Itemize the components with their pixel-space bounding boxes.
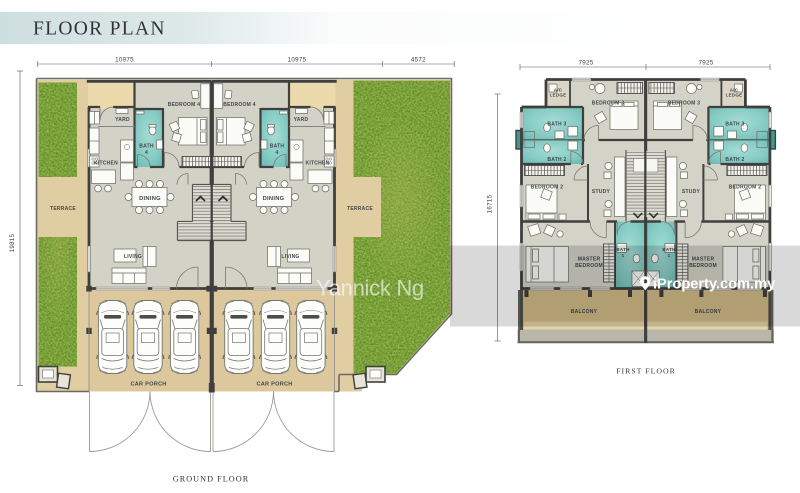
svg-text:iProperty.com.my: iProperty.com.my [653,277,776,293]
svg-text:LEDGE: LEDGE [726,93,743,98]
svg-text:BEDROOM 4: BEDROOM 4 [223,102,256,108]
svg-text:STUDY: STUDY [682,189,701,195]
svg-text:BEDROOM 2: BEDROOM 2 [729,185,762,191]
svg-text:YARD: YARD [115,117,130,123]
svg-text:7925: 7925 [699,60,714,67]
svg-text:STUDY: STUDY [592,189,611,195]
svg-text:BATH: BATH [270,144,285,150]
svg-text:Yannick Ng: Yannick Ng [316,276,424,301]
svg-text:FIRST FLOOR: FIRST FLOOR [616,367,676,376]
svg-text:4: 4 [275,150,278,156]
svg-text:BATH 3: BATH 3 [547,122,566,128]
svg-text:GROUND FLOOR: GROUND FLOOR [173,475,250,484]
svg-text:TERRACE: TERRACE [347,206,373,212]
svg-text:BEDROOM 3: BEDROOM 3 [592,101,625,107]
svg-text:DINING: DINING [139,196,161,202]
svg-text:16715: 16715 [487,194,494,213]
svg-text:TERRACE: TERRACE [50,206,76,212]
svg-text:10975: 10975 [288,57,307,64]
svg-text:KITCHEN: KITCHEN [94,161,118,167]
svg-text:KITCHEN: KITCHEN [306,161,330,167]
svg-text:10975: 10975 [115,57,134,64]
svg-text:7925: 7925 [579,60,594,67]
svg-text:LIVING: LIVING [281,254,299,260]
svg-text:DINING: DINING [263,196,285,202]
svg-text:FLOOR PLAN: FLOOR PLAN [33,19,166,40]
svg-text:LEDGE: LEDGE [550,93,567,98]
svg-text:CAR PORCH: CAR PORCH [130,382,166,388]
svg-text:CAR PORCH: CAR PORCH [256,382,292,388]
svg-text:BEDROOM 4: BEDROOM 4 [168,102,201,108]
svg-text:BATH 2: BATH 2 [547,157,566,163]
svg-text:BEDROOM 3: BEDROOM 3 [668,101,701,107]
svg-text:BATH: BATH [139,144,154,150]
svg-text:YARD: YARD [294,117,309,123]
svg-text:BATH 3: BATH 3 [725,122,744,128]
svg-text:19815: 19815 [9,233,16,252]
svg-text:4: 4 [145,150,148,156]
svg-text:LIVING: LIVING [124,254,142,260]
svg-text:4572: 4572 [411,57,426,64]
svg-text:BEDROOM 2: BEDROOM 2 [531,185,564,191]
svg-text:BATH 2: BATH 2 [725,157,744,163]
